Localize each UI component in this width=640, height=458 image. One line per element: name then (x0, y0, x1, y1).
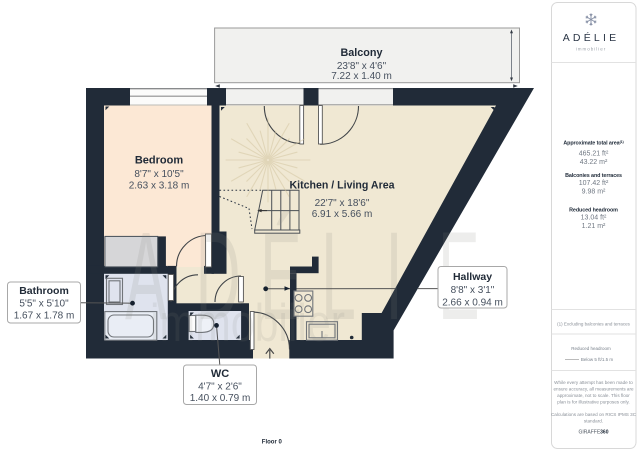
svg-text:107.42 ft²: 107.42 ft² (579, 180, 609, 187)
svg-text:plan is for illustrative purpo: plan is for illustrative purposes only. (557, 400, 629, 405)
svg-text:I: I (385, 206, 402, 345)
svg-text:ensure accuracy, all measureme: ensure accuracy, all measurements are (553, 387, 634, 392)
svg-text:Reduced headroom: Reduced headroom (571, 346, 611, 351)
svg-text:1.40 x 0.79 m: 1.40 x 0.79 m (190, 393, 251, 404)
svg-text:8'8" x 3'1": 8'8" x 3'1" (451, 285, 495, 296)
svg-text:While every attempt has been m: While every attempt has been made to (554, 380, 633, 385)
svg-text:WC: WC (211, 368, 229, 380)
svg-text:Floor 0: Floor 0 (262, 440, 283, 446)
svg-text:Hallway: Hallway (453, 271, 492, 283)
svg-text:Balconies and terraces: Balconies and terraces (565, 173, 622, 179)
svg-text:Balcony: Balcony (340, 47, 382, 59)
svg-text:Kitchen / Living Area: Kitchen / Living Area (290, 179, 395, 191)
svg-text:465.21 ft²: 465.21 ft² (579, 150, 609, 157)
svg-text:9.98 m²: 9.98 m² (582, 189, 606, 196)
svg-text:4'7" x 2'6": 4'7" x 2'6" (198, 382, 242, 393)
svg-text:Calculations are based on RICS: Calculations are based on RICS IPMS 3C (551, 412, 637, 417)
svg-text:1.67 x 1.78 m: 1.67 x 1.78 m (14, 311, 75, 322)
svg-text:2.63 x 3.18 m: 2.63 x 3.18 m (129, 181, 190, 192)
svg-text:2.66 x 0.94 m: 2.66 x 0.94 m (442, 297, 503, 308)
svg-text:immobilier: immobilier (576, 47, 607, 52)
svg-text:Below 5 ft/1.5 m: Below 5 ft/1.5 m (581, 357, 614, 362)
svg-text:standard.: standard. (584, 419, 603, 424)
svg-text:ADÉLIE: ADÉLIE (563, 31, 620, 44)
svg-text:43.22 m²: 43.22 m² (580, 159, 608, 166)
svg-text:immobilier: immobilier (150, 294, 345, 353)
svg-text:22'7" x 18'6": 22'7" x 18'6" (315, 198, 370, 209)
svg-text:Approximate total area(1): Approximate total area(1) (563, 140, 624, 147)
svg-text:Reduced headroom: Reduced headroom (569, 208, 618, 214)
svg-text:GIRAFFE360: GIRAFFE360 (578, 430, 608, 436)
svg-text:5'5" x 5'10": 5'5" x 5'10" (19, 299, 69, 310)
svg-text:7.22 x 1.40 m: 7.22 x 1.40 m (331, 71, 392, 82)
svg-text:13.04 ft²: 13.04 ft² (581, 215, 607, 222)
svg-text:(1) Excluding balconies and te: (1) Excluding balconies and terraces (557, 321, 631, 326)
svg-text:approximate, not to scale. Thi: approximate, not to scale. This floor (557, 393, 630, 398)
svg-text:8'7" x 10'5": 8'7" x 10'5" (134, 169, 184, 180)
svg-text:Bedroom: Bedroom (135, 155, 184, 167)
svg-text:Bathroom: Bathroom (19, 285, 69, 297)
svg-text:6.91 x 5.66 m: 6.91 x 5.66 m (312, 209, 373, 220)
svg-text:1.21 m²: 1.21 m² (582, 223, 606, 230)
